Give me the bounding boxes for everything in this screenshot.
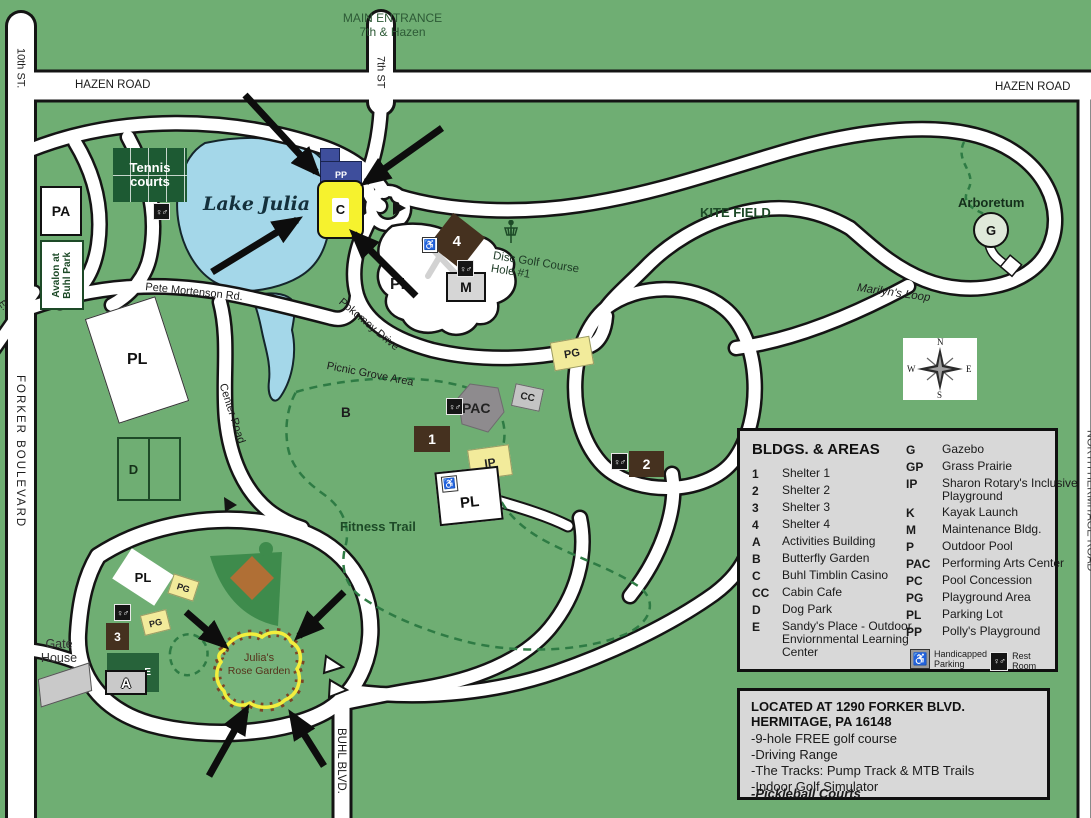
hazen-road-label-right: HAZEN ROAD [995,81,1070,94]
info-item: -The Tracks: Pump Track & MTB Trails [751,763,974,778]
compass-w: W [907,364,916,374]
legend-item: PGPlayground Area [906,591,1088,605]
shelter-1: 1 [414,426,450,452]
rest-room-icon: ♀♂ [611,453,628,470]
legend-item: CBuhl Timblin Casino [752,569,914,583]
hazen-road-label-left: HAZEN ROAD [75,79,150,92]
rose-garden-label: Julia's Rose Garden [212,652,306,677]
legend-item: DDog Park [752,603,914,617]
legend-item: GPGrass Prairie [906,460,1088,474]
legend-item: POutdoor Pool [906,540,1088,554]
legend-item: GGazebo [906,443,1088,457]
kite-field-label: KITE FIELD [700,206,771,221]
tennis-courts: Tennis courts [113,148,187,202]
shelter-3: 3 [106,623,129,650]
info-item: -Driving Range [751,747,838,762]
parking-mid: ♿ PL [434,466,503,526]
compass-s: S [937,390,942,400]
legend-restroom-entry: ♀♂ Rest Room [990,651,1055,671]
tenth-st-label: 10th ST. [14,48,27,88]
info-heading: LOCATED AT 1290 FORKER BLVD. HERMITAGE, … [751,699,1047,729]
activities-building: A [105,670,147,695]
lake-julia-label: Lake Julia [203,194,310,216]
legend-left-column: 1Shelter 1 2Shelter 2 3Shelter 3 4Shelte… [752,467,914,663]
legend-item: AActivities Building [752,535,914,549]
forker-blvd-label: FORKER BOULEVARD [13,375,26,528]
rest-room-icon: ♀♂ [990,652,1008,671]
info-item: -Pickleball Courts [751,786,861,801]
lake-julia-water [177,138,332,401]
avalon-at-buhl-park: Avalon at Buhl Park [40,240,84,310]
legend-handicapped-entry: ♿ Handicapped Parking [910,649,987,669]
parking-pool-label: PL [390,276,410,294]
buhl-timblin-casino: C [317,180,364,239]
legend-item: 2Shelter 2 [752,484,914,498]
disc-golf-basket-icon [503,220,519,244]
junction-islands [324,656,347,697]
legend-title: BLDGS. & AREAS [752,441,880,458]
legend-item: 4Shelter 4 [752,518,914,532]
butterfly-garden-label: B [341,405,351,421]
legend-item: BButterfly Garden [752,552,914,566]
fitness-trail-label: Fitness Trail [340,520,416,535]
park-map: MAIN ENTRANCE 7th & Hazen HAZEN ROAD HAZ… [0,0,1091,818]
shelter-2: 2 [629,451,664,477]
baseball-field [210,542,282,626]
legend-item: IPSharon Rotary's Inclusive Playground [906,477,1088,503]
compass-rose: N E S W [903,338,977,400]
handicapped-parking-icon: ♿ [441,475,459,493]
arboretum-label: Arboretum [958,196,1024,211]
gazebo: G [973,212,1009,248]
compass-e: E [966,364,972,374]
rest-room-icon: ♀♂ [446,398,463,415]
handicapped-parking-icon: ♿ [910,649,930,669]
legend-item: MMaintenance Bldg. [906,523,1088,537]
legend-item: PLParking Lot [906,608,1088,622]
legend-item: PACPerforming Arts Center [906,557,1088,571]
pac-label: PAC [462,400,491,416]
rest-room-icon: ♀♂ [457,260,474,277]
legend-item: KKayak Launch [906,506,1088,520]
rest-room-icon: ♀♂ [114,604,131,621]
legend-right-column: GGazebo GPGrass Prairie IPSharon Rotary'… [906,443,1088,642]
seventh-st-label: 7th ST [374,56,387,88]
rest-room-icon: ♀♂ [153,203,170,220]
compass-n: N [937,337,944,347]
buhl-blvd-label: BUHL BLVD. [334,728,347,794]
legend-item: CCCabin Cafe [752,586,914,600]
handicapped-parking-icon: ♿ [422,237,438,253]
legend-box: BLDGS. & AREAS 1Shelter 1 2Shelter 2 3Sh… [737,428,1058,672]
legend-item: 3Shelter 3 [752,501,914,515]
pa-area: PA [40,186,82,236]
legend-item: PCPool Concession [906,574,1088,588]
legend-item: 1Shelter 1 [752,467,914,481]
info-box: LOCATED AT 1290 FORKER BLVD. HERMITAGE, … [737,688,1050,800]
legend-item: PPPolly's Playground [906,625,1088,639]
info-item: -9-hole FREE golf course [751,731,897,746]
main-entrance-label: MAIN ENTRANCE 7th & Hazen [300,12,485,40]
legend-item: ESandy's Place - Outdoor Enviornmental L… [752,620,914,660]
dog-park: D [117,437,181,501]
gate-house-label: Gate House [36,637,82,666]
